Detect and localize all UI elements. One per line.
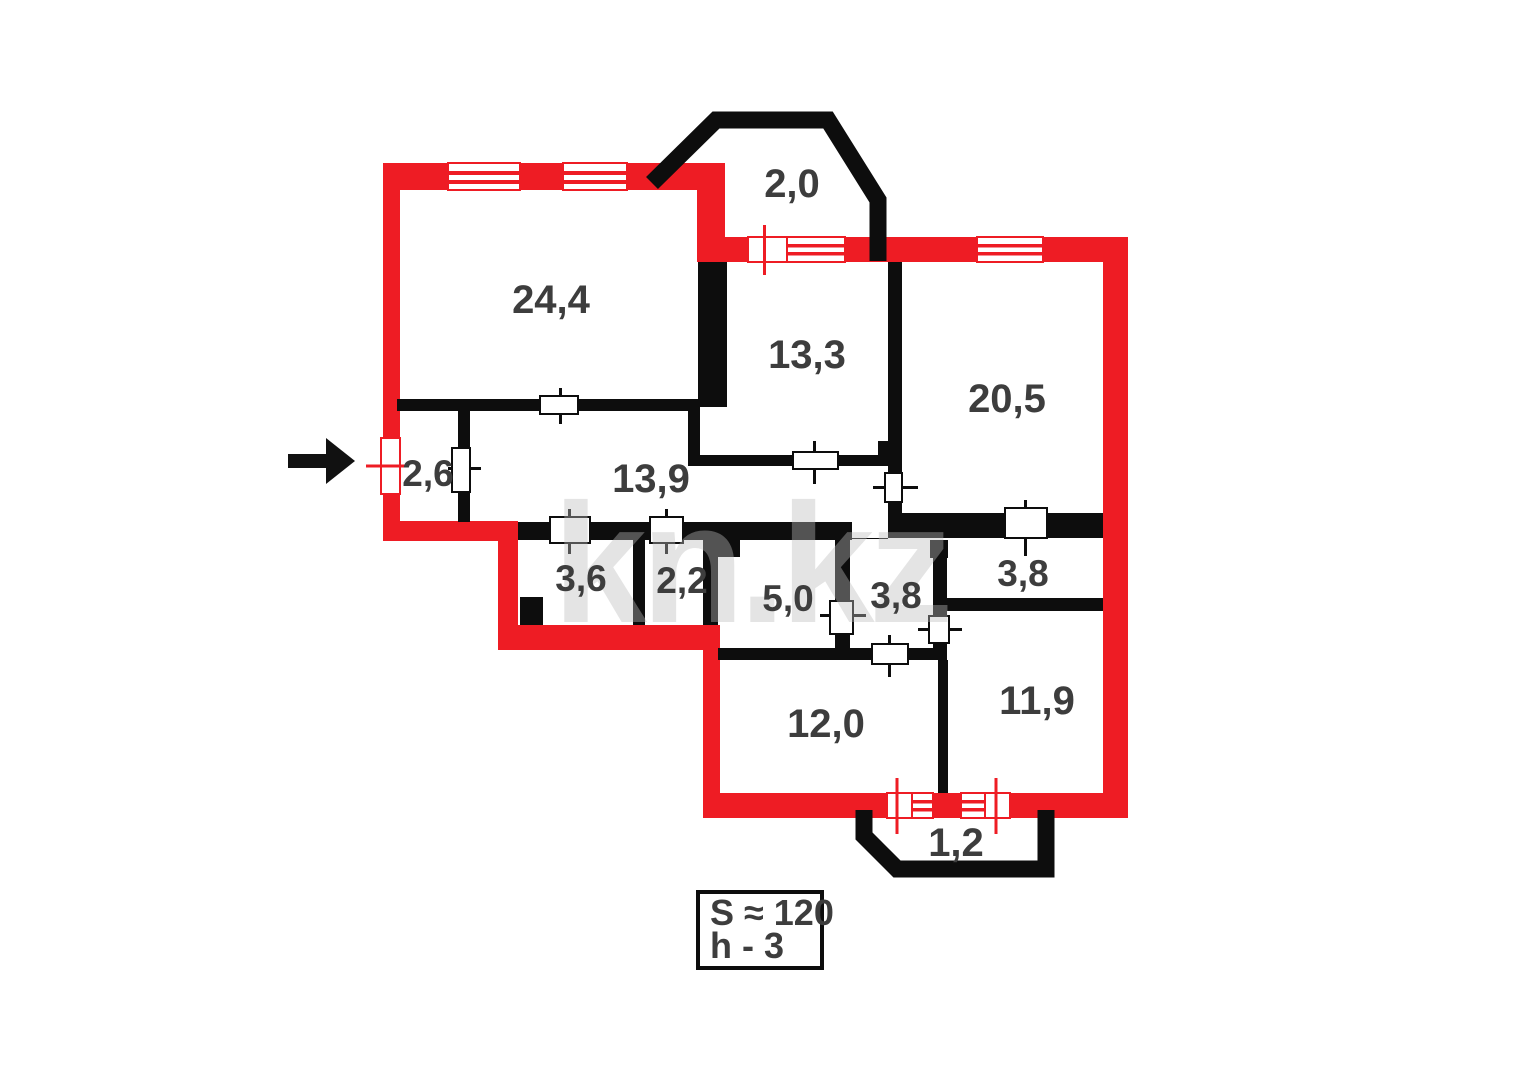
window-balcony-top — [787, 237, 845, 262]
door-closet-3-8 — [1005, 508, 1047, 538]
room-label-13-3: 13,3 — [768, 333, 846, 377]
room-label-corridor: 13,9 — [612, 457, 690, 501]
window-stripe — [977, 252, 1043, 256]
window-bottom-2 — [961, 793, 985, 818]
room-label-5-0: 5,0 — [762, 578, 813, 619]
window-stripe — [912, 800, 933, 804]
window-stripe — [787, 244, 845, 248]
window-stripe — [448, 171, 520, 175]
balcony-door-top — [748, 237, 787, 262]
wall-segment — [933, 598, 1103, 611]
room-label-12-0: 12,0 — [787, 702, 865, 746]
wall-segment — [458, 403, 470, 448]
arrow-shaft — [288, 454, 326, 468]
door-tick-red — [896, 778, 899, 834]
wall-segment — [688, 455, 793, 466]
window-living-left — [448, 163, 520, 190]
wall-segment — [938, 660, 948, 793]
wall-segment — [520, 597, 543, 625]
legend: S ≈ 120 h - 3 — [698, 892, 834, 968]
room-label-2-2: 2,2 — [656, 560, 707, 601]
room-label-hall-3-8: 3,8 — [870, 575, 921, 616]
room-label-closet-3-8: 3,8 — [997, 553, 1048, 594]
room-label-entry: 2,6 — [402, 453, 453, 494]
wall-segment — [383, 521, 518, 541]
room-label-living: 24,4 — [512, 278, 591, 322]
wall-segment — [698, 262, 727, 407]
room-label-balcony-top: 2,0 — [764, 162, 820, 206]
balcony-door-bottom-1 — [887, 793, 912, 818]
wall-segment — [518, 522, 550, 540]
room-label-11-9: 11,9 — [999, 679, 1075, 723]
window-room-20-5 — [977, 237, 1043, 262]
door-entry-hall — [452, 448, 470, 492]
wall-segment — [458, 492, 470, 522]
room-label-balcony-bottom: 1,2 — [928, 821, 984, 865]
door-tick-red — [995, 778, 998, 834]
window-stripe — [961, 800, 985, 804]
window-stripe — [448, 180, 520, 184]
wall-segment — [888, 262, 902, 473]
door-living-room — [540, 396, 578, 414]
wall-segment — [697, 190, 725, 262]
entrance-arrow-icon — [288, 438, 355, 484]
window-stripe — [787, 252, 845, 256]
door-room-13-3 — [793, 452, 838, 469]
window-living-right — [563, 163, 627, 190]
wall-segment — [578, 399, 698, 411]
door-tick-red — [763, 225, 766, 275]
window-stripe — [961, 808, 985, 812]
legend-height-label: h - 3 — [710, 925, 784, 966]
wall-segment — [1103, 237, 1128, 818]
window-bottom-1 — [912, 793, 933, 818]
room-label-20-5: 20,5 — [968, 377, 1046, 421]
window-stripe — [563, 180, 627, 184]
floor-plan-canvas: kn.kz 24,4 2,0 13,3 20,5 2,6 13,9 3,6 2,… — [0, 0, 1516, 1080]
wall-segment — [838, 455, 893, 466]
arrow-head — [326, 438, 355, 484]
wall-segment — [1047, 513, 1103, 538]
window-stripe — [563, 171, 627, 175]
floor-plan-page: kn.kz 24,4 2,0 13,3 20,5 2,6 13,9 3,6 2,… — [0, 0, 1516, 1080]
window-stripe — [912, 808, 933, 812]
room-label-3-6: 3,6 — [555, 558, 606, 599]
window-stripe — [977, 244, 1043, 248]
